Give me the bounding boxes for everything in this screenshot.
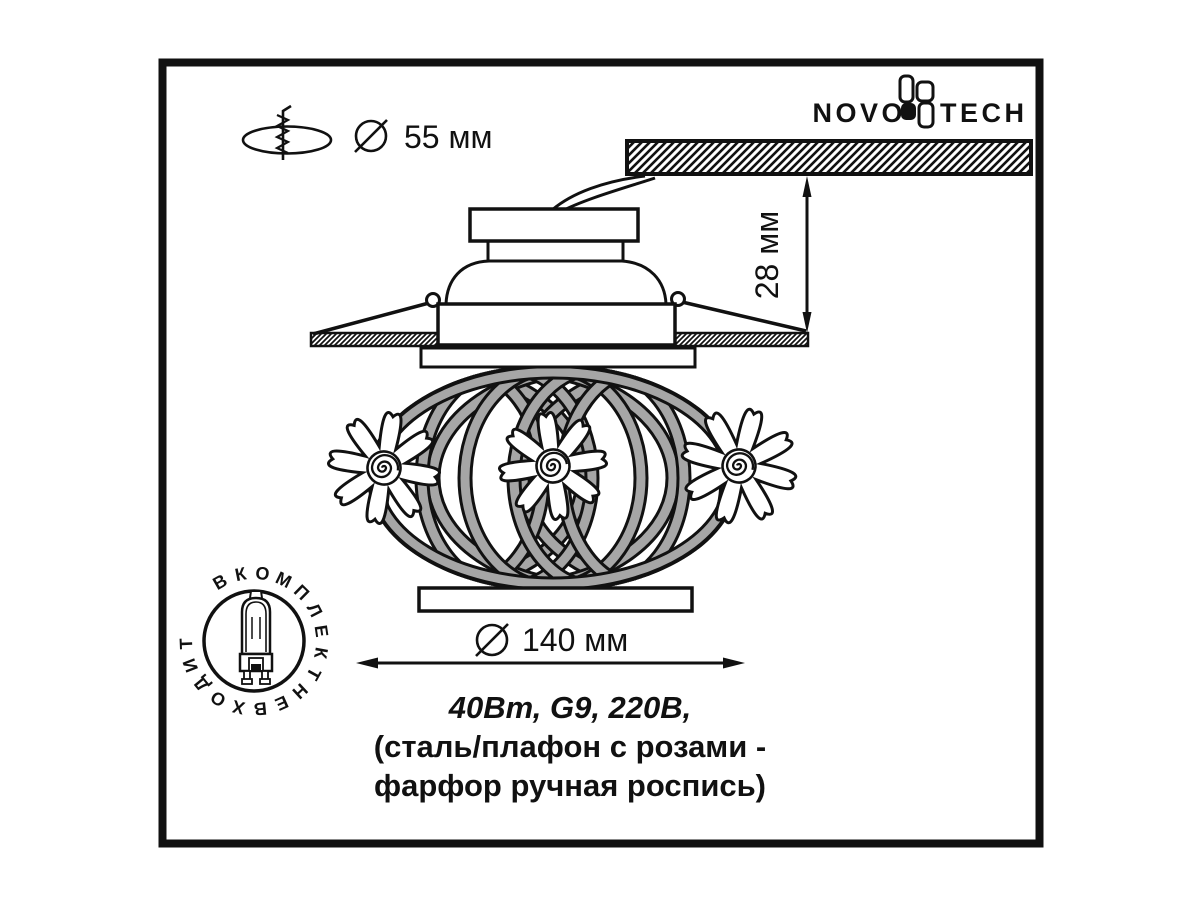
hole-diameter-label: 55 мм xyxy=(404,119,492,155)
caption-material-1: (сталь/плафон с розами - xyxy=(374,729,766,764)
lamp-dome xyxy=(446,261,666,304)
upper-ring xyxy=(421,348,695,367)
g9-bulb-icon xyxy=(240,591,272,684)
recess-depth-label: 28 мм xyxy=(749,211,785,299)
lamp-canopy xyxy=(470,209,638,241)
brand-logo-left: NOVO xyxy=(812,98,906,128)
badge-letter: В xyxy=(253,698,268,719)
caption-specs: 40Вт, G9, 220В, xyxy=(448,690,692,725)
trim-cylinder xyxy=(438,304,675,345)
body-diameter-label: 140 мм xyxy=(522,622,628,658)
lamp-neck xyxy=(488,241,623,261)
bottom-collar xyxy=(419,588,692,611)
diagram-canvas: 55 мм NOVO TECH 28 мм xyxy=(0,0,1200,900)
caption-material-2: фарфор ручная роспись) xyxy=(374,768,766,803)
badge-letter: Т xyxy=(176,638,196,650)
flange-left xyxy=(311,333,438,346)
spec-sheet: 55 мм NOVO TECH 28 мм xyxy=(0,0,1200,900)
ceiling-section xyxy=(627,141,1031,174)
flange-right xyxy=(675,333,808,346)
badge-letter: О xyxy=(254,563,270,585)
brand-logo-right: TECH xyxy=(940,98,1028,128)
